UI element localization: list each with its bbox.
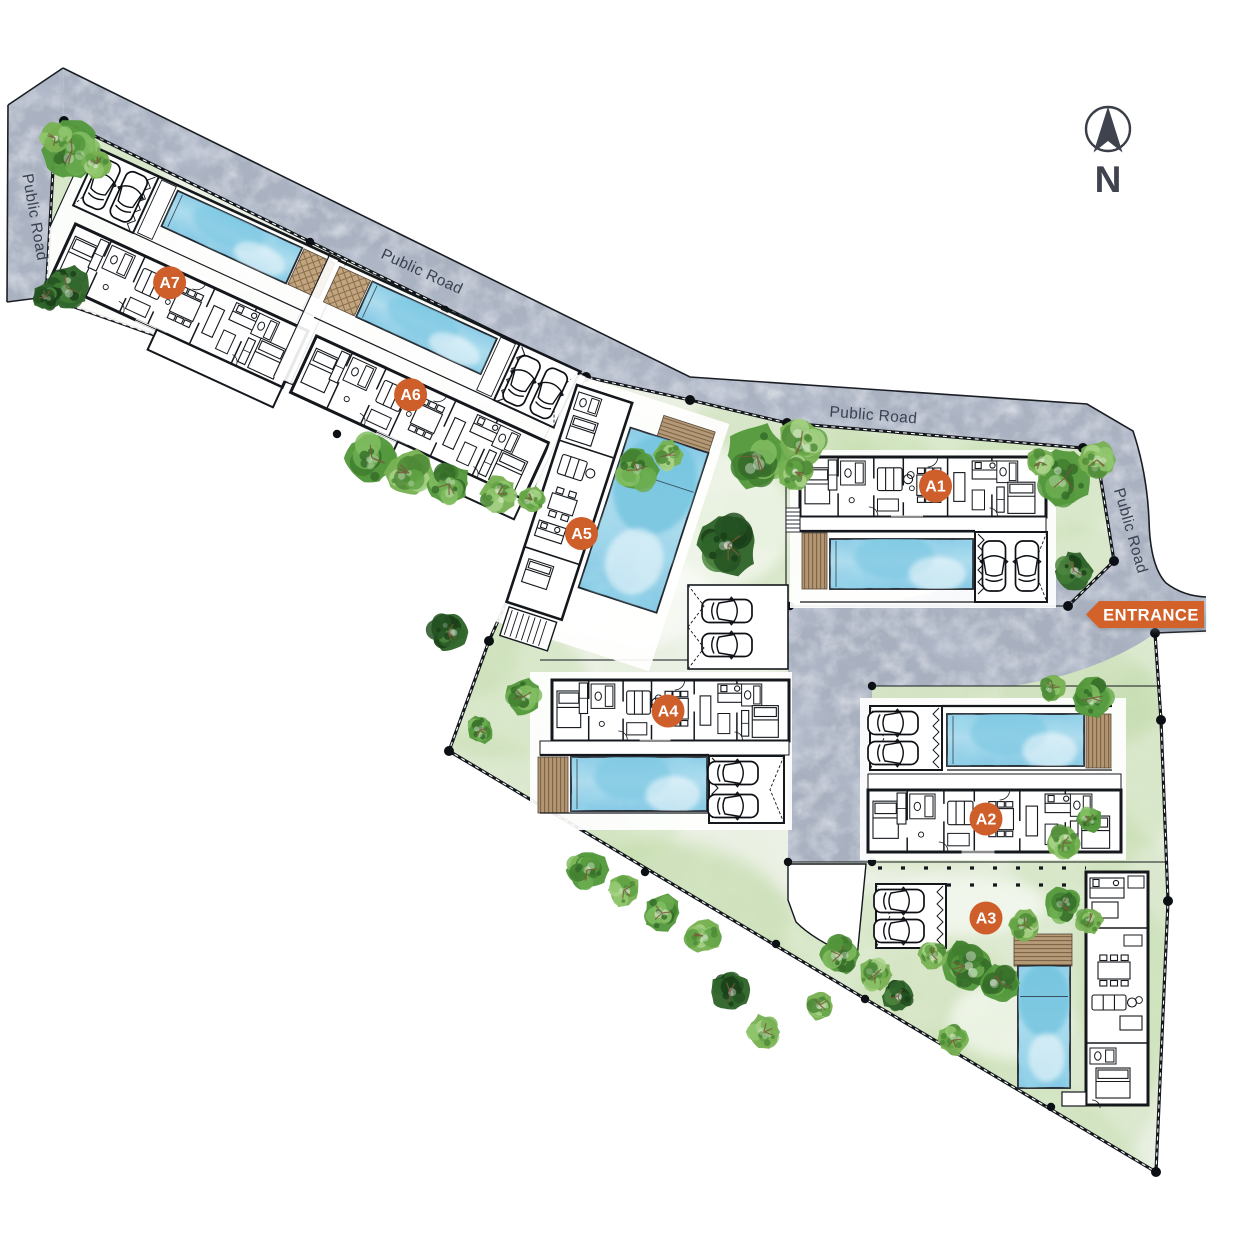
svg-text:A7: A7 [159,275,180,292]
svg-text:A4: A4 [658,704,679,721]
svg-text:A1: A1 [925,479,946,496]
svg-text:A2: A2 [976,812,997,829]
svg-text:A6: A6 [400,387,421,404]
svg-text:A5: A5 [571,526,592,543]
svg-text:A3: A3 [976,911,997,928]
svg-text:N: N [1095,159,1122,200]
svg-text:ENTRANCE: ENTRANCE [1103,607,1199,625]
